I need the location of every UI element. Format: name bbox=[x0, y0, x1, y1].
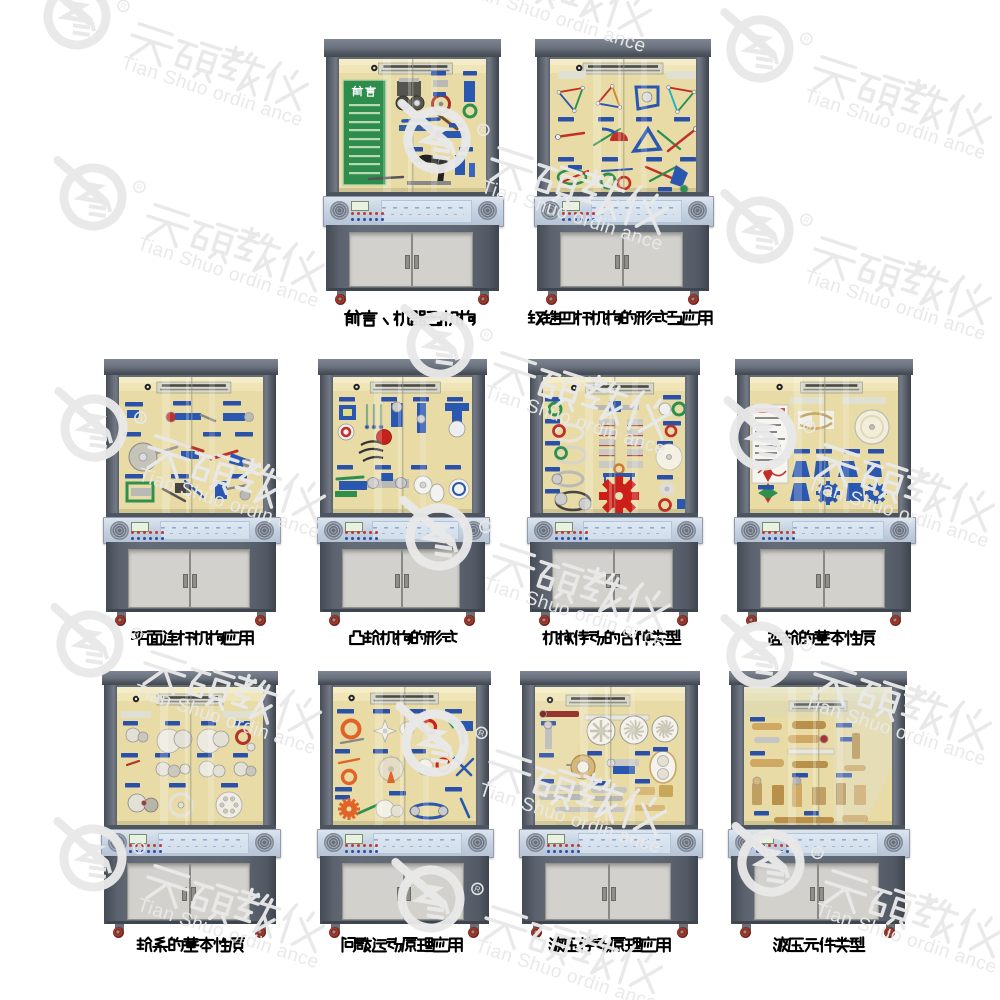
svg-text:R: R bbox=[119, 1, 127, 11]
svg-text:Tian Shuo ordin ance: Tian Shuo ordin ance bbox=[135, 234, 322, 313]
svg-text:R: R bbox=[802, 215, 810, 225]
svg-text:R: R bbox=[482, 330, 490, 340]
svg-text:Tian Shuo ordin ance: Tian Shuo ordin ance bbox=[802, 267, 989, 346]
svg-text:Tian Shuo ordin ance: Tian Shuo ordin ance bbox=[802, 86, 989, 165]
svg-text:R: R bbox=[135, 182, 143, 192]
svg-text:Tian Shuo ordin ance: Tian Shuo ordin ance bbox=[473, 936, 660, 1000]
svg-text:Tian Shuo ordin ance: Tian Shuo ordin ance bbox=[119, 53, 306, 132]
svg-text:R: R bbox=[802, 34, 810, 44]
svg-text:R: R bbox=[132, 629, 140, 639]
svg-text:R: R bbox=[802, 640, 810, 650]
